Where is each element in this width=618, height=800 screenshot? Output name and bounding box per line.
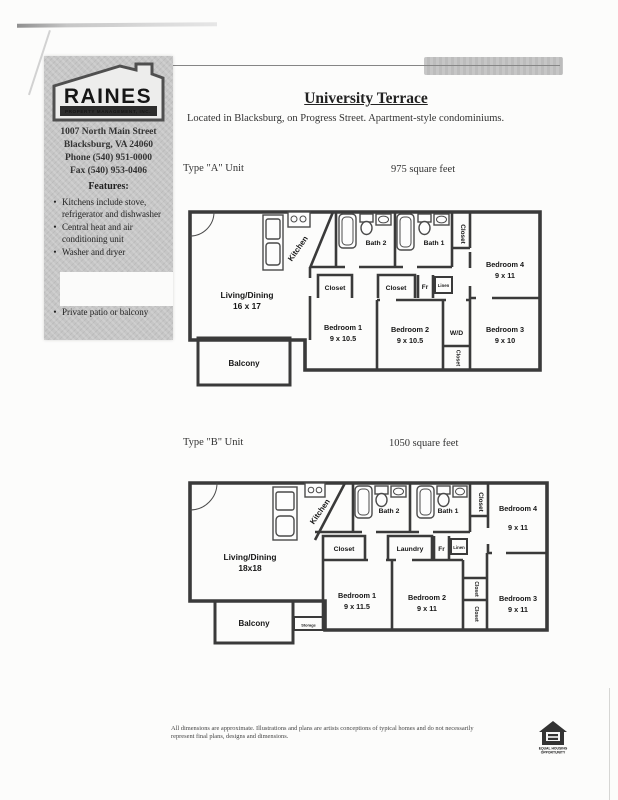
room-label-closet-top: Closet [459, 224, 466, 244]
toilet-icon [375, 486, 388, 494]
room-dims-bedroom2: 9 x 10.5 [397, 336, 423, 345]
sidebar: RAINES PROPERTY MANAGEMENT, INC. 1007 No… [44, 56, 173, 340]
features-list: • Kitchens include stove, refrigerator a… [48, 197, 170, 261]
room-label-linen: Linen [453, 545, 465, 550]
scan-artifact-top-smudge [17, 22, 217, 27]
room-label-bedroom3: Bedroom 3 [486, 325, 524, 334]
room-label-bedroom2: Bedroom 2 [391, 325, 429, 334]
unit-b-sqft: 1050 square feet [389, 438, 458, 449]
unit-a-label: Type "A" Unit [183, 163, 244, 174]
address-line: 1007 North Main Street [44, 126, 173, 139]
room-label-closet1: Closet [334, 546, 356, 553]
bullet-icon: • [48, 222, 62, 245]
scan-artifact-horizontal-line [168, 65, 560, 66]
raines-logo: RAINES PROPERTY MANAGEMENT, INC. [50, 60, 167, 124]
room-label-closet2: Closet [386, 285, 408, 292]
room-label-bath1: Bath 1 [438, 508, 459, 515]
room-label-fr: Fr [438, 546, 445, 553]
room-label-bath1: Bath 1 [424, 240, 445, 247]
toilet-icon [437, 486, 450, 494]
room-label-living: Living/Dining [223, 552, 276, 562]
feature-item: • Central heat and air conditioning unit [48, 222, 170, 245]
whiteout-patch [60, 272, 173, 306]
room-dims-living: 18x18 [238, 563, 262, 573]
room-label-bedroom2: Bedroom 2 [408, 593, 446, 602]
room-dims-bedroom4: 9 x 11 [495, 271, 515, 280]
room-label-bedroom1: Bedroom 1 [338, 591, 376, 600]
room-dims-bedroom2: 9 x 11 [417, 604, 437, 613]
room-label-wd: W/D [450, 330, 463, 337]
scan-artifact-gray-band [424, 57, 563, 75]
page-subtitle: Located in Blacksburg, on Progress Stree… [187, 113, 504, 124]
room-label-fr: Fr [422, 284, 429, 291]
room-label-living: Living/Dining [220, 290, 273, 300]
room-label-closet1: Closet [325, 285, 347, 292]
bullet-icon: • [48, 307, 62, 317]
room-label-bedroom4: Bedroom 4 [486, 260, 525, 269]
bullet-icon: • [48, 197, 62, 220]
room-label-balcony: Balcony [238, 619, 270, 628]
bullet-icon: • [48, 247, 62, 259]
feature-text: Private patio or balcony [62, 307, 148, 317]
unit-a-sqft: 975 square feet [391, 164, 455, 175]
room-label-closet-wd: Closet [455, 350, 461, 367]
room-label-bath2: Bath 2 [366, 240, 387, 247]
features-title: Features: [44, 181, 173, 192]
room-dims-bedroom3: 9 x 11 [508, 605, 528, 614]
room-label-laundry: Laundry [397, 546, 424, 553]
address-line: Blacksburg, VA 24060 [44, 139, 173, 152]
room-label-kitchen: Kitchen [308, 497, 332, 526]
room-dims-bedroom4: 9 x 11 [508, 523, 528, 532]
room-label-balcony: Balcony [228, 359, 260, 368]
raines-logo-banner-text: PROPERTY MANAGEMENT, INC. [65, 109, 151, 114]
room-label-storage: Storage [301, 623, 316, 628]
feature-text: Washer and dryer [62, 247, 170, 259]
equal-housing-caption: OPPORTUNITY [541, 751, 566, 755]
feature-text: Central heat and air conditioning unit [62, 222, 170, 245]
room-dims-living: 16 x 17 [233, 301, 261, 311]
appliance-icon [276, 516, 294, 536]
feature-item: • Kitchens include stove, refrigerator a… [48, 197, 170, 220]
room-dims-bedroom1: 9 x 10.5 [330, 334, 356, 343]
unit-b-label: Type "B" Unit [183, 437, 243, 448]
room-dims-bedroom3: 9 x 10 [495, 336, 515, 345]
door-arc-icon [190, 212, 214, 236]
appliance-icon [276, 492, 294, 510]
appliance-icon [266, 243, 280, 265]
equal-housing-icon: EQUAL HOUSING OPPORTUNITY [537, 720, 569, 760]
disclaimer: All dimensions are approximate. Illustra… [171, 725, 501, 740]
room-dims-bedroom1: 9 x 11.5 [344, 602, 370, 611]
door-arc-icon [190, 483, 217, 510]
disclaimer-line: represent final plans, designs and dimen… [171, 733, 501, 741]
feature-item: • Washer and dryer [48, 247, 170, 259]
room-label-closet-top: Closet [477, 492, 484, 512]
address-block: 1007 North Main Street Blacksburg, VA 24… [44, 126, 173, 178]
appliance-icon [266, 219, 280, 239]
room-label-bedroom4: Bedroom 4 [499, 504, 538, 513]
scanned-flyer-page: RAINES PROPERTY MANAGEMENT, INC. 1007 No… [0, 0, 618, 800]
address-line: Phone (540) 951-0000 [44, 152, 173, 165]
floorplan-a: Living/Dining 16 x 17 Kitchen Bath 2 Bat… [188, 208, 544, 390]
feature-item-extra: • Private patio or balcony [48, 307, 170, 317]
scan-artifact-right-edge [609, 688, 610, 800]
room-label-kitchen: Kitchen [286, 234, 310, 263]
floorplan-b: Living/Dining 18x18 Kitchen Bath 2 Bath … [188, 480, 550, 648]
room-label-bath2: Bath 2 [379, 508, 400, 515]
raines-logo-name: RAINES [64, 85, 152, 108]
room-label-closet-mid: Closet [473, 581, 479, 597]
room-label-bedroom1: Bedroom 1 [324, 323, 362, 332]
floorplan-b-labels: Living/Dining 18x18 Kitchen Bath 2 Bath … [223, 492, 538, 628]
address-line: Fax (540) 953-0406 [44, 165, 173, 178]
room-label-closet-low: Closet [473, 606, 479, 622]
room-label-bedroom3: Bedroom 3 [499, 594, 537, 603]
page-title: University Terrace [188, 90, 544, 108]
feature-text: Kitchens include stove, refrigerator and… [62, 197, 170, 220]
disclaimer-line: All dimensions are approximate. Illustra… [171, 725, 501, 733]
room-label-linen: Linen [438, 283, 450, 288]
